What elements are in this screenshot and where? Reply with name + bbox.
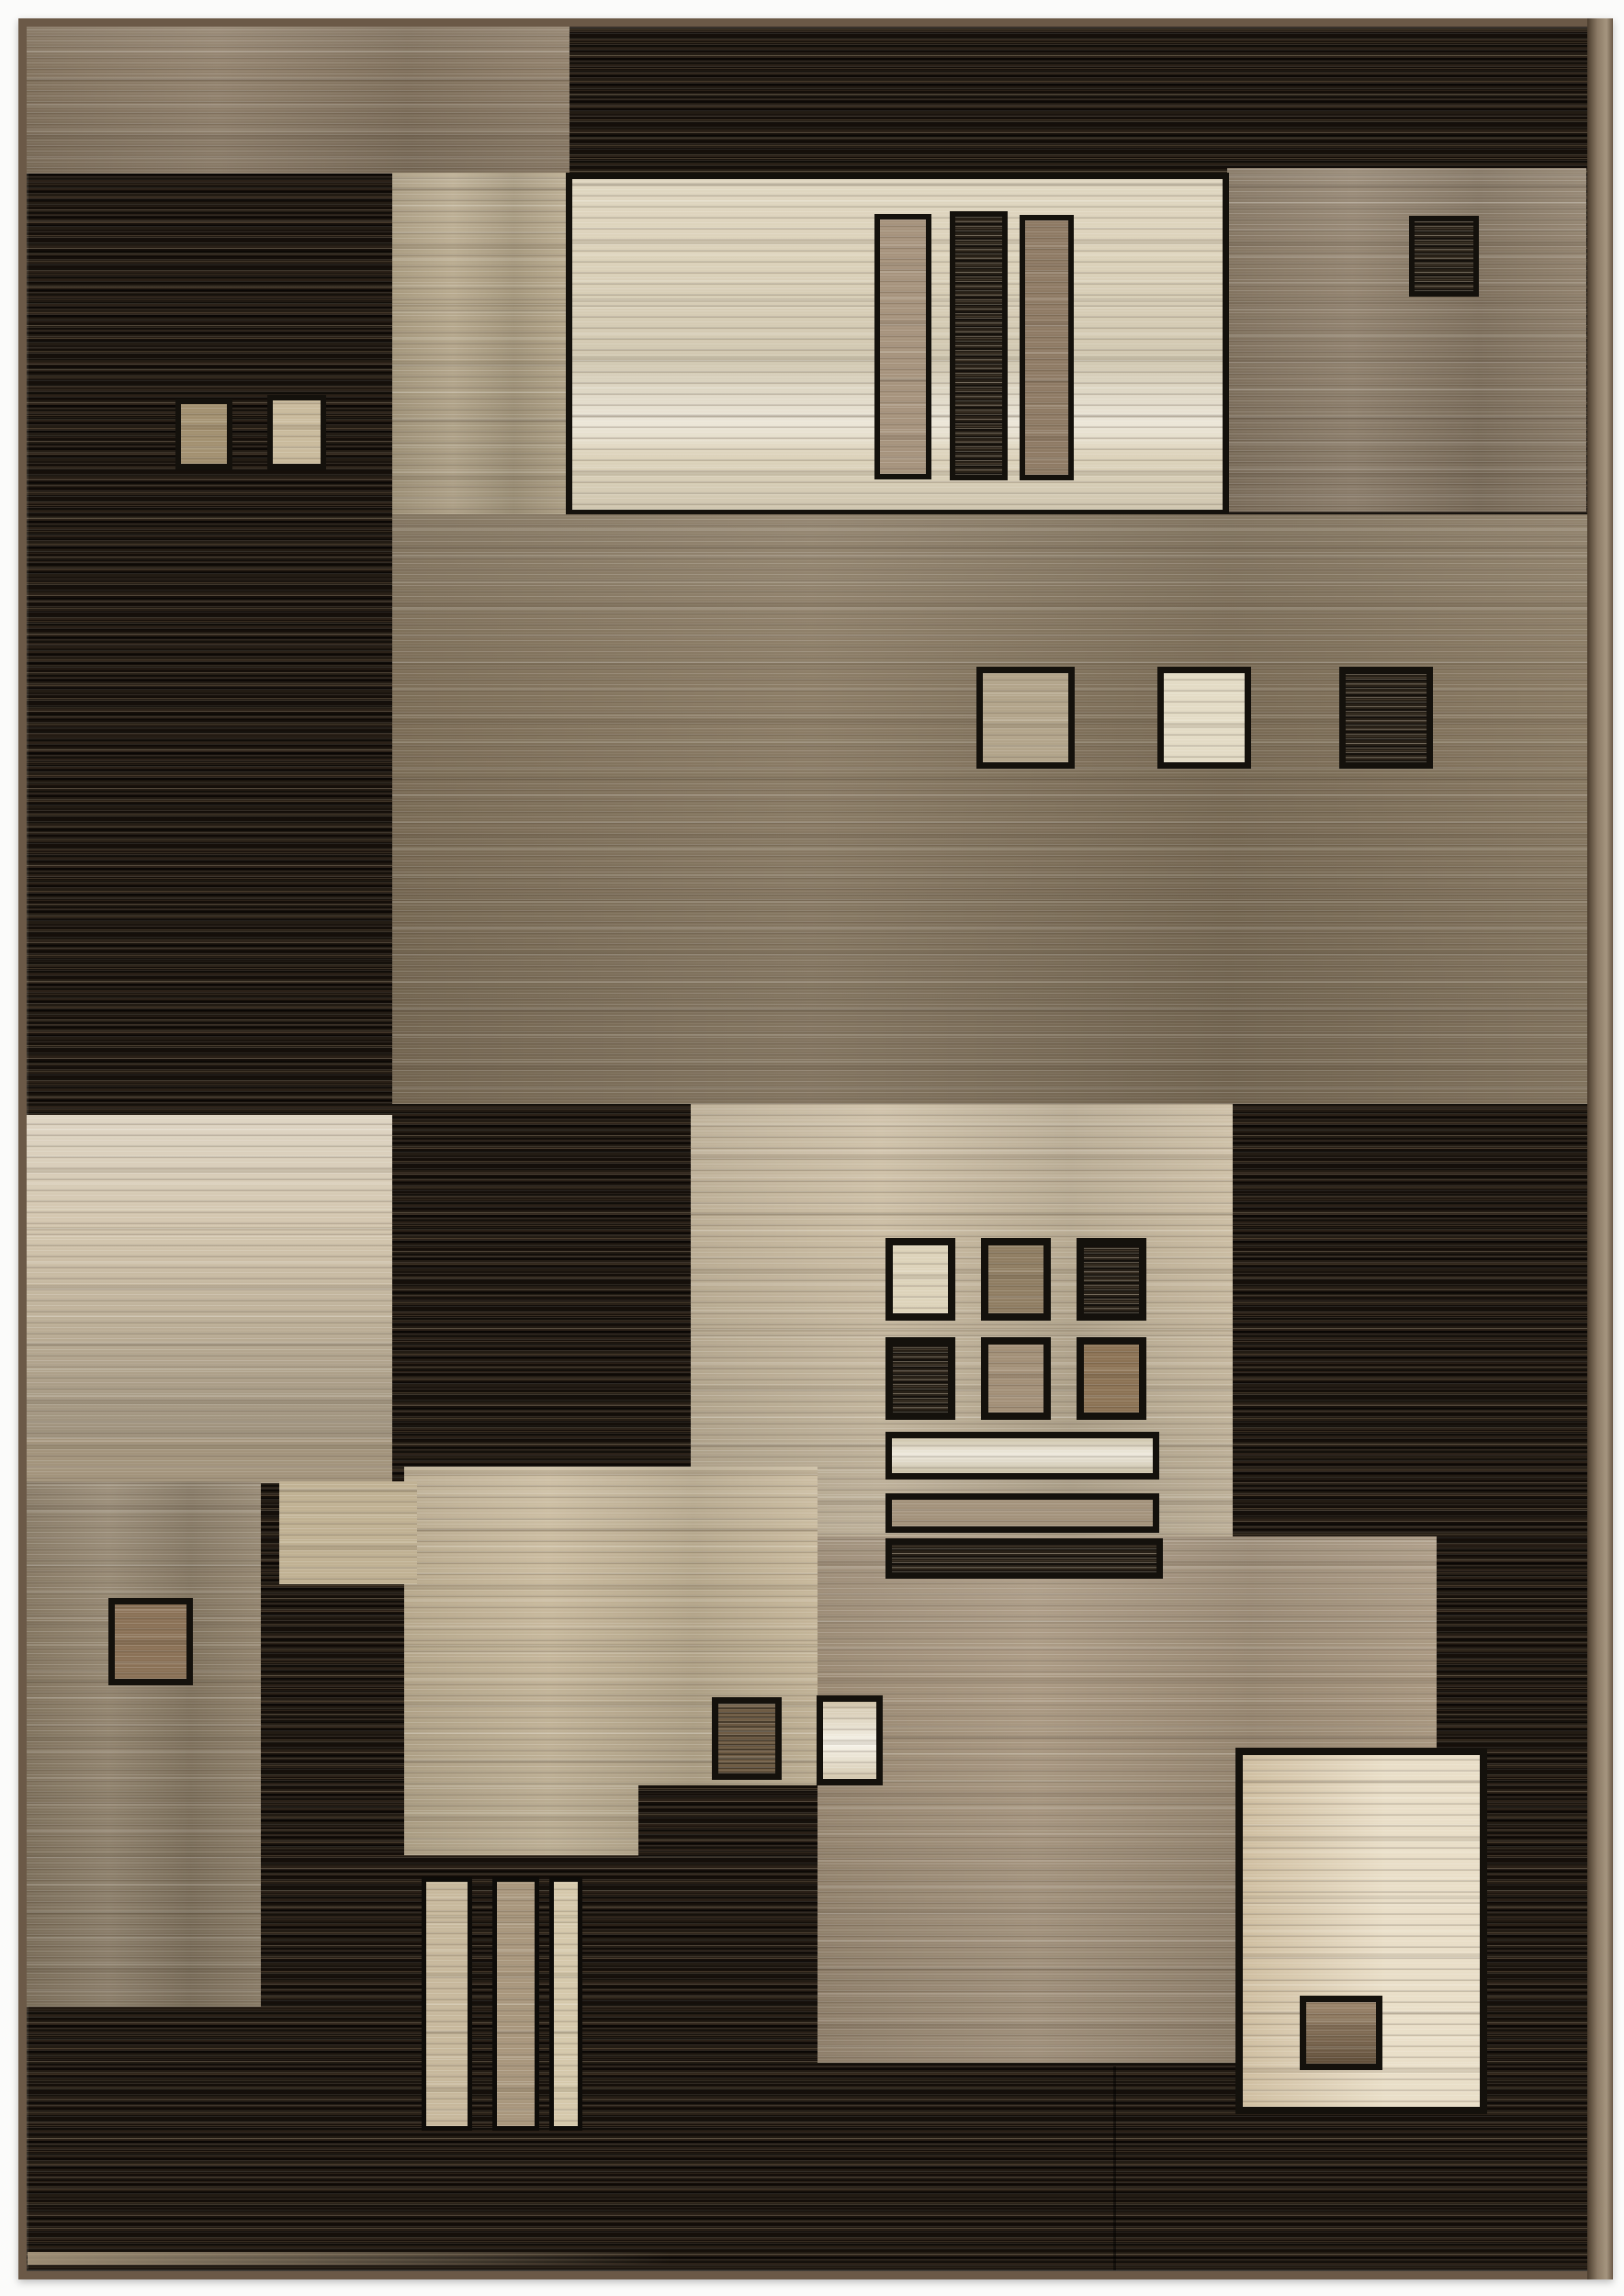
bottom-vbar-beige (422, 1877, 472, 2131)
bottom-seam-line (1113, 2066, 1116, 2270)
cream-panel-bar-dark (950, 211, 1008, 480)
bottom-vbar-tan (492, 1877, 539, 2131)
small-cream-square (817, 1695, 883, 1785)
grid-square-dark-2 (885, 1337, 955, 1420)
grid-square-chestnut (1077, 1337, 1146, 1420)
cream-panel-bar-brown (1020, 215, 1074, 480)
hbar-tan (885, 1493, 1159, 1533)
middle-taupe-band (392, 514, 1587, 1104)
drab-block-brown-square (108, 1598, 193, 1685)
hbar-dark (885, 1538, 1163, 1579)
cream-panel-bar-tan (874, 214, 931, 479)
left-column-square-cream (267, 395, 326, 469)
band-square-cream (1157, 667, 1251, 769)
band-square-tan (976, 667, 1075, 769)
beige-column (392, 173, 566, 514)
top-right-tan-block (1227, 168, 1586, 512)
bottom-vbar-cream (549, 1877, 582, 2131)
top-right-dark-square (1409, 216, 1479, 297)
left-column-square-tan (175, 399, 232, 469)
left-cream-block-lower-strip (27, 1438, 392, 1483)
dark-patch-below-beige (638, 1785, 818, 1857)
drab-block (27, 1481, 261, 2007)
bottom-edge-highlight (28, 2252, 671, 2265)
top-left-taupe-block (27, 27, 570, 174)
grid-square-cream (885, 1238, 955, 1321)
grid-square-taupe (981, 1337, 1051, 1420)
small-dark-square (712, 1697, 782, 1780)
left-cream-block (27, 1115, 392, 1438)
bottom-right-brown-square (1300, 1996, 1382, 2070)
hbar-cream (885, 1432, 1159, 1480)
photo-canvas (0, 0, 1624, 2296)
band-square-dark (1339, 667, 1433, 769)
mid-left-beige-patch (279, 1481, 417, 1584)
grid-square-brown (981, 1238, 1051, 1321)
rug-right-binding (1587, 18, 1613, 2279)
grid-square-dark-1 (1077, 1238, 1146, 1321)
